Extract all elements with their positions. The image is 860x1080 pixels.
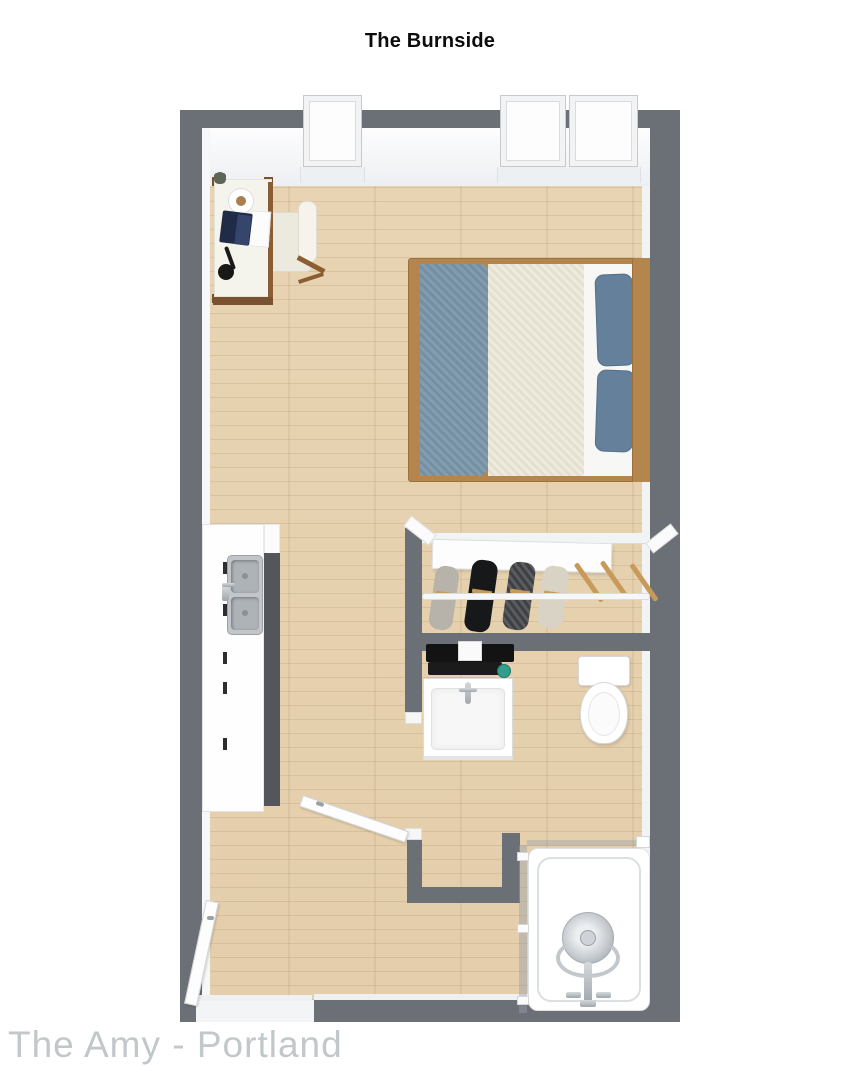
plant-icon [214, 172, 226, 184]
plan-title: The Burnside [0, 30, 860, 53]
sink-drain [242, 573, 248, 579]
entry-threshold [196, 1000, 314, 1022]
toilet-seat [588, 692, 620, 736]
glass-hinge [517, 924, 529, 933]
entry-door-handle [207, 916, 214, 920]
shower-cross-handle [596, 992, 611, 998]
kitchen-counter-end [264, 524, 280, 554]
coffee-icon [236, 196, 246, 206]
chair-back-cushion [298, 201, 317, 263]
double-window-sill [497, 167, 641, 183]
glass-hinge [517, 996, 529, 1005]
bed-duvet [488, 264, 584, 476]
alcove-wall-right [502, 833, 520, 903]
cabinet-handle [223, 738, 227, 750]
cabinet-handle [223, 682, 227, 694]
cabinet-handle [223, 604, 227, 616]
wall-right [650, 110, 680, 1022]
bed-pillow [595, 369, 636, 452]
double-window-right [569, 95, 638, 167]
bed-pillow [594, 273, 635, 366]
cabinet-handle [223, 562, 227, 574]
shower-cross-handle [566, 992, 581, 998]
shower-riser-pipe [584, 962, 592, 1004]
kitchen-faucet [222, 586, 229, 601]
glass-end-cap [636, 836, 650, 848]
shower-spout [580, 1000, 596, 1007]
kitchen-faucet-spout [222, 583, 235, 587]
kitchen-counter-side [264, 553, 280, 806]
vanity-faucet-handle [459, 688, 477, 692]
floor-plan-page: The Burnside The Amy - Portland [0, 0, 860, 1080]
entry-sill [198, 995, 312, 1001]
desk-lamp-icon [218, 264, 234, 280]
watermark-text: The Amy - Portland [8, 1024, 343, 1066]
bath-door-jamb-top [405, 712, 422, 724]
closet-bath-west-wall [405, 528, 422, 712]
closet-rod [422, 593, 650, 600]
glass-hinge [517, 852, 529, 861]
double-window-left [500, 95, 566, 167]
bed-headboard [632, 258, 650, 482]
window-sill [300, 167, 365, 183]
wall-left [180, 110, 202, 1022]
window-single [303, 95, 362, 167]
cabinet-handle [223, 652, 227, 664]
bed-blanket [420, 264, 488, 476]
towel-bar-black [428, 662, 502, 675]
desk-stretcher-wood [213, 297, 273, 305]
shelf-white-box [458, 641, 482, 661]
soap-jar-icon [497, 664, 511, 678]
sink-drain [242, 610, 248, 616]
vanity-faucet [465, 682, 471, 704]
bath-wall-stub [407, 840, 422, 890]
shower-glass-top [527, 840, 650, 846]
